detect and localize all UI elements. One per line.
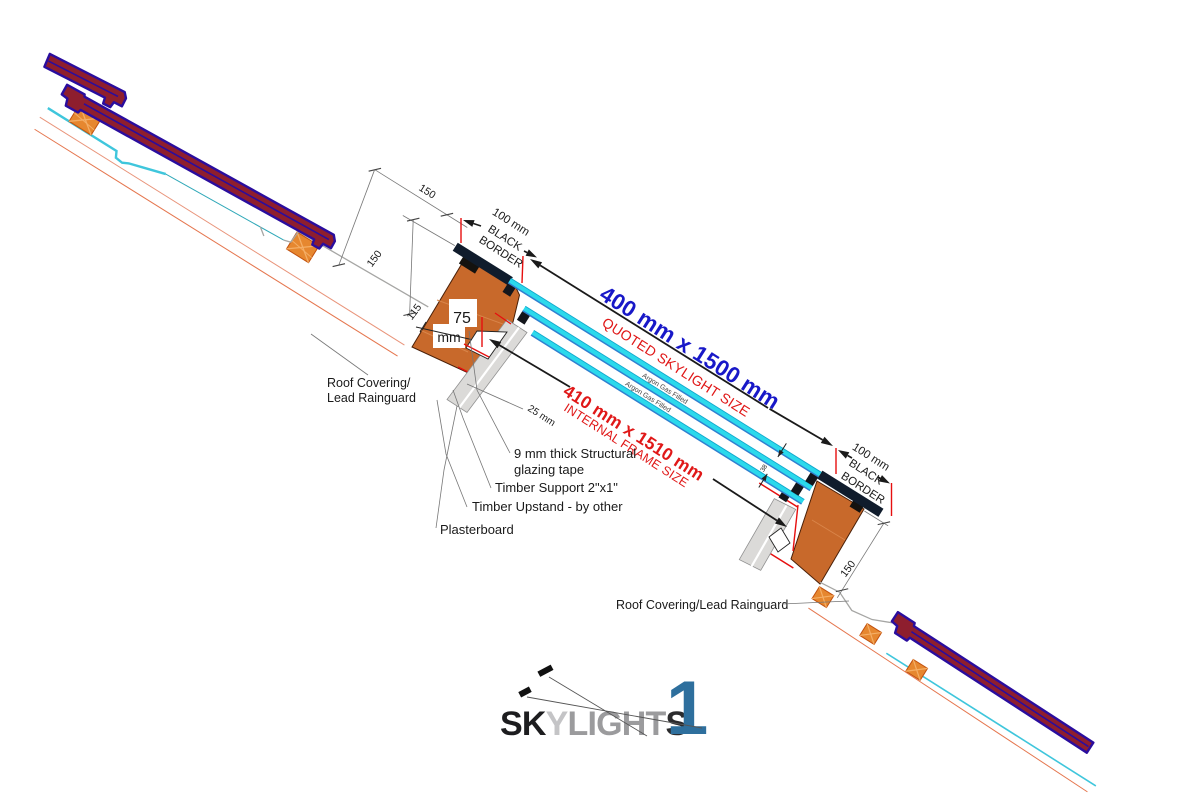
svg-text:9 mm thick Structural: 9 mm thick Structural <box>514 446 636 461</box>
svg-text:mm: mm <box>437 329 460 345</box>
svg-text:Timber Upstand - by other: Timber Upstand - by other <box>472 499 623 514</box>
svg-text:Roof Covering/Lead Rainguard: Roof Covering/Lead Rainguard <box>616 598 788 612</box>
svg-text:glazing tape: glazing tape <box>514 462 584 477</box>
svg-text:1: 1 <box>666 666 708 751</box>
svg-text:SKYLIGHTS: SKYLIGHTS <box>500 705 688 743</box>
svg-text:Lead Rainguard: Lead Rainguard <box>327 391 416 405</box>
svg-text:Plasterboard: Plasterboard <box>440 522 514 537</box>
svg-text:75: 75 <box>453 310 471 327</box>
svg-text:Timber Support 2"x1": Timber Support 2"x1" <box>495 480 618 495</box>
svg-text:Roof Covering/: Roof Covering/ <box>327 376 411 390</box>
